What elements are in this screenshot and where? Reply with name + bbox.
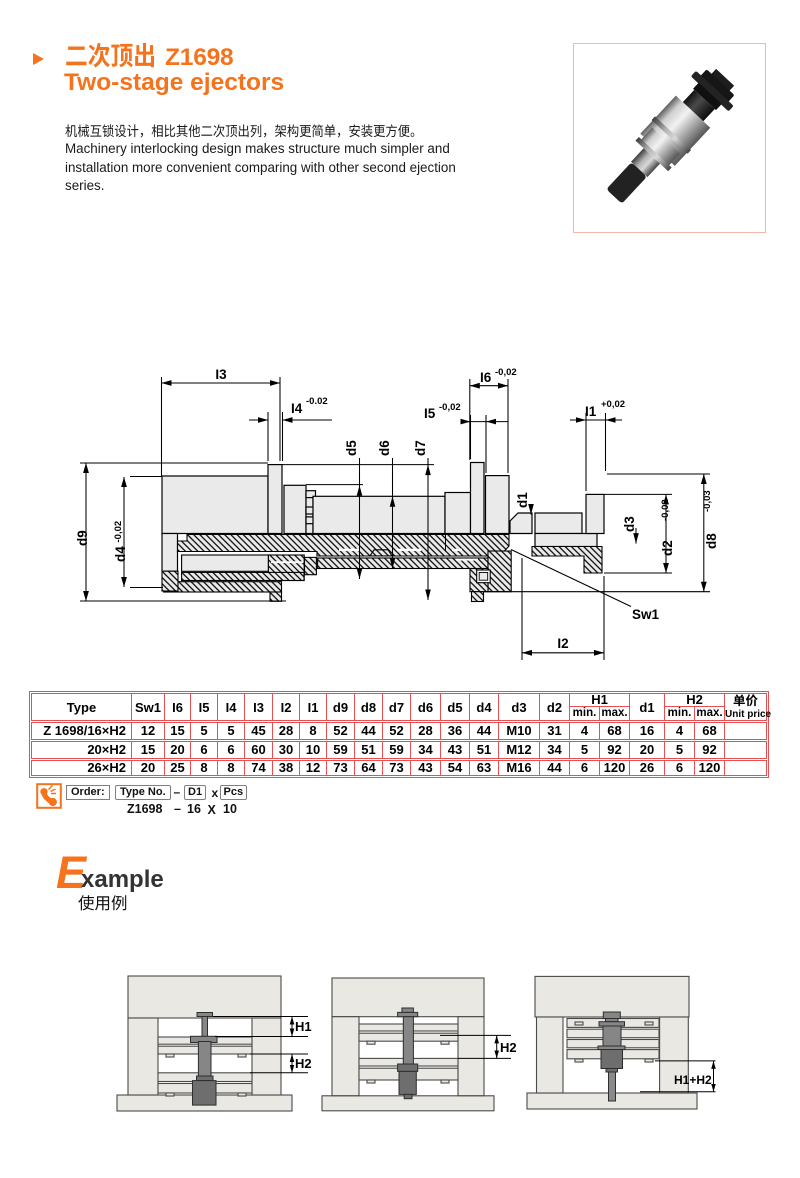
svg-text:-0,03: -0,03 xyxy=(702,490,713,512)
svg-text:-0,02: -0,02 xyxy=(660,499,671,521)
svg-text:H1+H2: H1+H2 xyxy=(674,1073,712,1087)
svg-text:I5: I5 xyxy=(424,406,436,421)
svg-text:I6: I6 xyxy=(480,370,492,385)
svg-text:H2: H2 xyxy=(295,1056,312,1071)
svg-text:d8: d8 xyxy=(704,533,719,549)
svg-text:H2: H2 xyxy=(500,1040,517,1055)
svg-text:I1: I1 xyxy=(585,404,597,419)
svg-text:d7: d7 xyxy=(413,440,428,456)
svg-text:+0,02: +0,02 xyxy=(601,399,625,410)
svg-text:I4: I4 xyxy=(291,401,303,416)
svg-text:d6: d6 xyxy=(377,440,392,456)
svg-text:Sw1: Sw1 xyxy=(632,607,660,622)
svg-text:-0,02: -0,02 xyxy=(439,402,461,413)
svg-text:I3: I3 xyxy=(215,367,227,382)
svg-text:Z1698: Z1698 xyxy=(165,44,233,71)
svg-text:d2: d2 xyxy=(660,540,675,556)
svg-text:-0.02: -0.02 xyxy=(306,396,328,407)
svg-text:I2: I2 xyxy=(557,636,568,651)
svg-text:d4 -0,02: d4 -0,02 xyxy=(113,521,128,562)
svg-text:d3: d3 xyxy=(622,516,637,532)
svg-text:H1: H1 xyxy=(295,1019,312,1034)
svg-text:d1: d1 xyxy=(515,492,530,508)
svg-text:-0,02: -0,02 xyxy=(495,367,517,378)
svg-text:d9: d9 xyxy=(75,530,90,546)
svg-text:d5: d5 xyxy=(344,440,359,456)
